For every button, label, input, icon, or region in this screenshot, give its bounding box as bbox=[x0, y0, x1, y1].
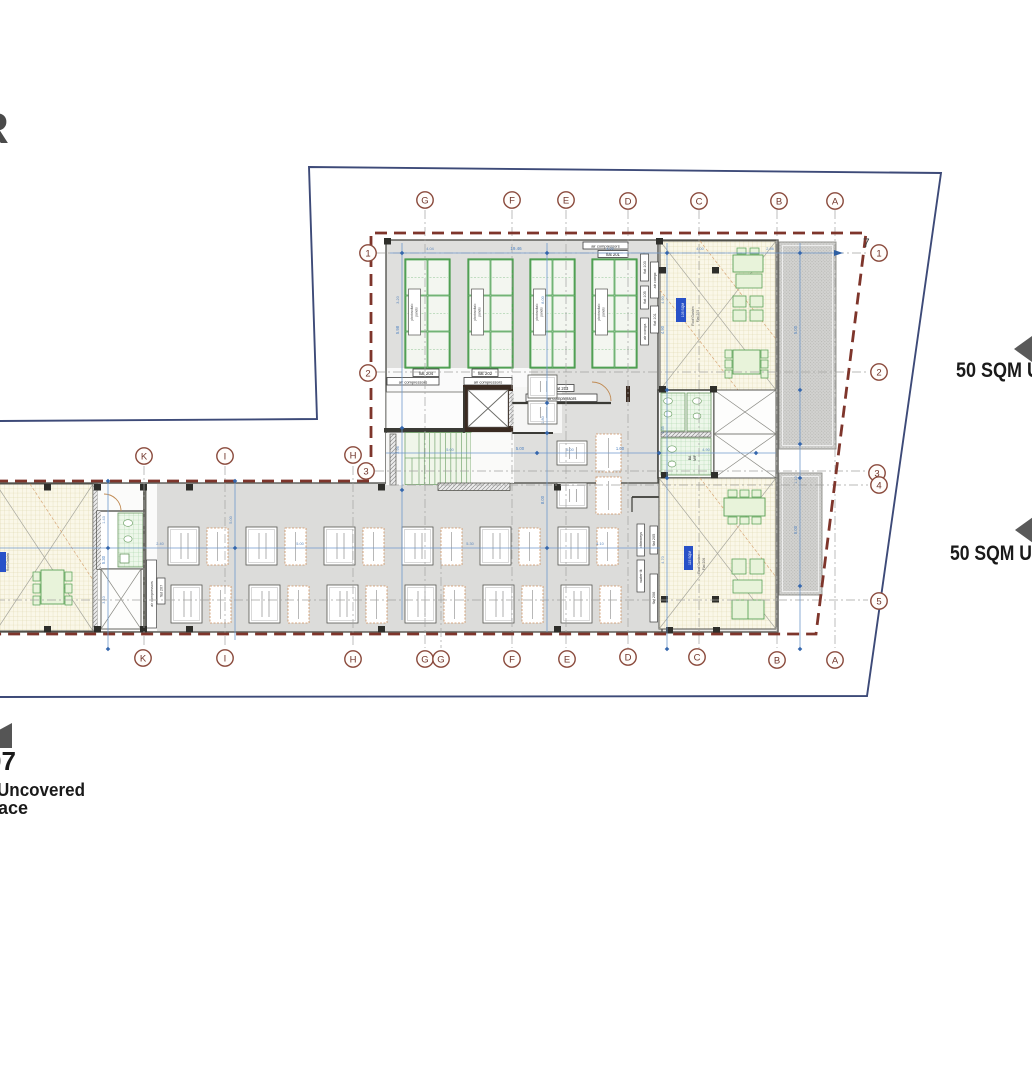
svg-text:F: F bbox=[509, 195, 515, 206]
svg-text:G: G bbox=[437, 654, 444, 665]
svg-text:E: E bbox=[564, 654, 570, 665]
svg-text:5.98: 5.98 bbox=[395, 325, 400, 334]
svg-text:4.90: 4.90 bbox=[702, 448, 709, 452]
svg-text:D: D bbox=[625, 196, 632, 207]
svg-text:5.00: 5.00 bbox=[566, 448, 573, 452]
svg-text:E: E bbox=[563, 195, 569, 206]
svg-text:I: I bbox=[224, 653, 227, 664]
svg-text:G: G bbox=[421, 654, 428, 665]
svg-text:B: B bbox=[774, 655, 780, 666]
svg-text:Roof Garden: Roof Garden bbox=[691, 306, 695, 326]
svg-text:C: C bbox=[694, 652, 701, 663]
svg-text:5.00: 5.00 bbox=[296, 542, 303, 546]
svg-text:C: C bbox=[696, 196, 703, 207]
svg-text:3.20: 3.20 bbox=[396, 296, 400, 303]
svg-text:5.00: 5.00 bbox=[516, 446, 525, 451]
svg-text:8.00: 8.00 bbox=[540, 495, 545, 504]
svg-text:19.46: 19.46 bbox=[510, 246, 522, 251]
svg-text:4: 4 bbox=[876, 480, 881, 491]
svg-text:flat 105: flat 105 bbox=[643, 291, 647, 303]
svg-text:4.04: 4.04 bbox=[426, 247, 433, 251]
svg-text:5.30: 5.30 bbox=[101, 555, 106, 564]
svg-text:flat 205: flat 205 bbox=[652, 534, 656, 546]
svg-text:1.43: 1.43 bbox=[102, 516, 106, 523]
svg-text:flat 101: flat 101 bbox=[653, 313, 657, 325]
svg-text:air compr.: air compr. bbox=[643, 323, 647, 340]
svg-text:1: 1 bbox=[365, 248, 370, 259]
svg-text:air compressors: air compressors bbox=[474, 379, 502, 384]
svg-text:panels: panels bbox=[540, 307, 544, 317]
svg-text:Roof Garden: Roof Garden bbox=[6, 553, 10, 571]
svg-text:4.70: 4.70 bbox=[661, 556, 665, 563]
svg-text:5.00: 5.00 bbox=[446, 448, 453, 452]
svg-text:3.10: 3.10 bbox=[102, 596, 106, 603]
svg-text:photovoltaic: photovoltaic bbox=[410, 303, 414, 320]
svg-text:K: K bbox=[141, 451, 148, 462]
svg-text:1.00: 1.00 bbox=[616, 446, 625, 451]
svg-text:photovoltaic: photovoltaic bbox=[535, 303, 539, 320]
svg-text:photovoltaic: photovoltaic bbox=[597, 303, 601, 320]
svg-text:I: I bbox=[224, 451, 227, 462]
svg-text:flat 206: flat 206 bbox=[652, 592, 656, 604]
svg-text:flat 103: flat 103 bbox=[643, 261, 647, 273]
svg-text:air compressors: air compressors bbox=[399, 379, 427, 384]
svg-text:air compressors: air compressors bbox=[150, 581, 154, 607]
svg-text:air compr.: air compr. bbox=[653, 272, 657, 289]
svg-text:5: 5 bbox=[876, 596, 881, 607]
svg-text:F: F bbox=[509, 654, 515, 665]
svg-text:2.40: 2.40 bbox=[156, 542, 163, 546]
svg-text:water tk: water tk bbox=[639, 569, 643, 582]
svg-text:5.30: 5.30 bbox=[466, 542, 473, 546]
svg-text:8.00: 8.00 bbox=[541, 296, 545, 303]
svg-text:50 SQM U: 50 SQM U bbox=[950, 542, 1032, 565]
svg-text:K: K bbox=[140, 653, 147, 664]
svg-text:4.10: 4.10 bbox=[596, 542, 603, 546]
svg-text:3: 3 bbox=[363, 466, 368, 477]
svg-text:1.35: 1.35 bbox=[661, 426, 665, 433]
svg-text:H: H bbox=[350, 450, 357, 461]
svg-text:M/F: M/F bbox=[693, 455, 697, 461]
svg-text:115 SQM: 115 SQM bbox=[688, 551, 692, 565]
svg-text:5.00: 5.00 bbox=[229, 516, 233, 523]
svg-text:2: 2 bbox=[365, 368, 370, 379]
svg-text:1.10: 1.10 bbox=[794, 476, 798, 483]
svg-text:G: G bbox=[421, 195, 428, 206]
svg-text:4.00: 4.00 bbox=[696, 247, 703, 251]
svg-text:Flat 206: Flat 206 bbox=[702, 558, 706, 570]
svg-text:2.96: 2.96 bbox=[396, 446, 400, 453]
svg-text:4.00: 4.00 bbox=[606, 247, 613, 251]
svg-text:ace: ace bbox=[0, 798, 28, 818]
svg-text:50 SQM U: 50 SQM U bbox=[956, 359, 1032, 382]
svg-text:BA: BA bbox=[688, 455, 692, 460]
svg-text:H: H bbox=[350, 654, 357, 665]
svg-text:A: A bbox=[832, 196, 839, 207]
svg-text:07: 07 bbox=[0, 746, 16, 776]
svg-text:2: 2 bbox=[876, 367, 881, 378]
svg-text:photovoltaic: photovoltaic bbox=[473, 303, 477, 320]
svg-text:2.98: 2.98 bbox=[766, 247, 773, 251]
svg-text:4.90: 4.90 bbox=[660, 325, 665, 334]
svg-text:Flat 203: Flat 203 bbox=[696, 310, 700, 322]
svg-text:panels: panels bbox=[602, 307, 606, 317]
svg-text:R: R bbox=[0, 104, 9, 153]
svg-text:105 SQM: 105 SQM bbox=[681, 303, 685, 317]
svg-text:1.80: 1.80 bbox=[541, 416, 545, 423]
svg-text:A: A bbox=[832, 655, 839, 666]
svg-text:flat 207: flat 207 bbox=[159, 585, 163, 597]
svg-text:panels: panels bbox=[478, 307, 482, 317]
svg-text:4.90: 4.90 bbox=[661, 296, 665, 303]
svg-text:chimneys: chimneys bbox=[639, 532, 643, 548]
svg-text:panels: panels bbox=[415, 307, 419, 317]
svg-text:D: D bbox=[625, 652, 632, 663]
svg-text:5.00: 5.00 bbox=[793, 325, 798, 334]
svg-text:B: B bbox=[776, 196, 782, 207]
svg-text:Uncovered: Uncovered bbox=[0, 780, 85, 800]
svg-text:1: 1 bbox=[876, 248, 881, 259]
svg-text:7: 7 bbox=[863, 236, 870, 250]
svg-text:5.00: 5.00 bbox=[793, 525, 798, 534]
